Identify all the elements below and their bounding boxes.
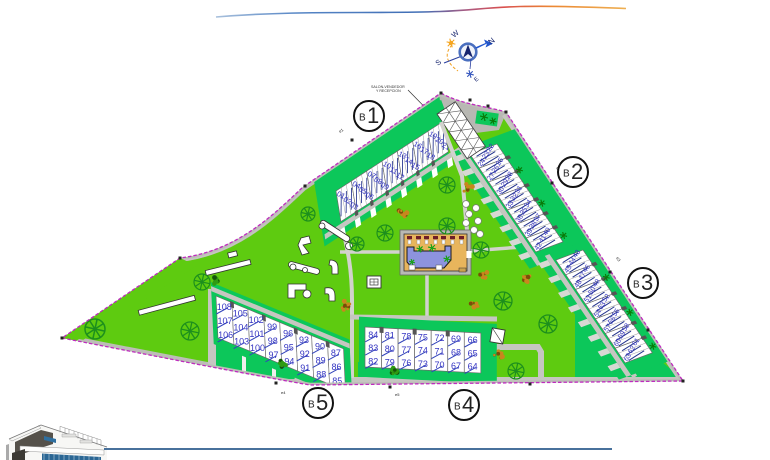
svg-text:95: 95 bbox=[284, 342, 294, 352]
svg-text:91: 91 bbox=[300, 363, 310, 373]
svg-text:96: 96 bbox=[283, 328, 293, 338]
svg-text:3: 3 bbox=[641, 270, 653, 295]
svg-text:78: 78 bbox=[401, 332, 411, 342]
svg-text:B: B bbox=[633, 280, 640, 291]
svg-text:e4: e4 bbox=[281, 390, 286, 395]
svg-text:4: 4 bbox=[462, 392, 474, 417]
svg-text:90: 90 bbox=[315, 342, 325, 352]
svg-text:68: 68 bbox=[451, 347, 461, 357]
svg-text:106: 106 bbox=[218, 330, 233, 340]
svg-text:77: 77 bbox=[401, 345, 411, 355]
svg-text:70: 70 bbox=[434, 360, 444, 370]
svg-text:74: 74 bbox=[418, 346, 428, 356]
svg-text:108: 108 bbox=[217, 302, 232, 312]
svg-text:103: 103 bbox=[234, 337, 249, 347]
svg-text:80: 80 bbox=[385, 344, 395, 354]
svg-text:73: 73 bbox=[418, 359, 428, 369]
svg-text:B: B bbox=[359, 113, 366, 124]
svg-text:B: B bbox=[454, 402, 461, 413]
svg-text:84: 84 bbox=[368, 330, 378, 340]
svg-text:Y RECEPCION: Y RECEPCION bbox=[376, 89, 401, 93]
svg-text:79: 79 bbox=[385, 357, 395, 367]
svg-text:97: 97 bbox=[268, 350, 278, 360]
svg-text:82: 82 bbox=[368, 356, 378, 366]
svg-text:92: 92 bbox=[300, 349, 310, 359]
svg-text:B: B bbox=[308, 400, 315, 411]
svg-text:5: 5 bbox=[316, 390, 328, 415]
svg-text:98: 98 bbox=[268, 336, 278, 346]
svg-text:B: B bbox=[563, 169, 570, 180]
svg-text:e5: e5 bbox=[395, 392, 400, 397]
svg-text:65: 65 bbox=[468, 348, 478, 358]
svg-text:99: 99 bbox=[267, 322, 277, 332]
svg-text:86: 86 bbox=[331, 362, 341, 372]
svg-text:102: 102 bbox=[249, 315, 264, 325]
svg-text:64: 64 bbox=[468, 362, 478, 372]
svg-text:100: 100 bbox=[250, 343, 265, 353]
svg-text:93: 93 bbox=[299, 335, 309, 345]
svg-text:71: 71 bbox=[434, 347, 444, 357]
svg-text:107: 107 bbox=[217, 316, 232, 326]
svg-text:104: 104 bbox=[233, 323, 248, 333]
svg-text:66: 66 bbox=[468, 335, 478, 345]
svg-text:101: 101 bbox=[249, 329, 264, 339]
svg-text:87: 87 bbox=[331, 348, 341, 358]
svg-text:83: 83 bbox=[368, 343, 378, 353]
svg-text:67: 67 bbox=[451, 361, 461, 371]
svg-text:88: 88 bbox=[316, 370, 326, 380]
svg-text:75: 75 bbox=[418, 332, 428, 342]
svg-text:1: 1 bbox=[367, 103, 379, 128]
svg-text:2: 2 bbox=[571, 159, 583, 184]
svg-text:72: 72 bbox=[434, 333, 444, 343]
svg-text:89: 89 bbox=[316, 356, 326, 366]
svg-text:81: 81 bbox=[385, 331, 395, 341]
svg-text:105: 105 bbox=[233, 309, 248, 319]
svg-text:69: 69 bbox=[451, 334, 461, 344]
svg-text:76: 76 bbox=[401, 358, 411, 368]
